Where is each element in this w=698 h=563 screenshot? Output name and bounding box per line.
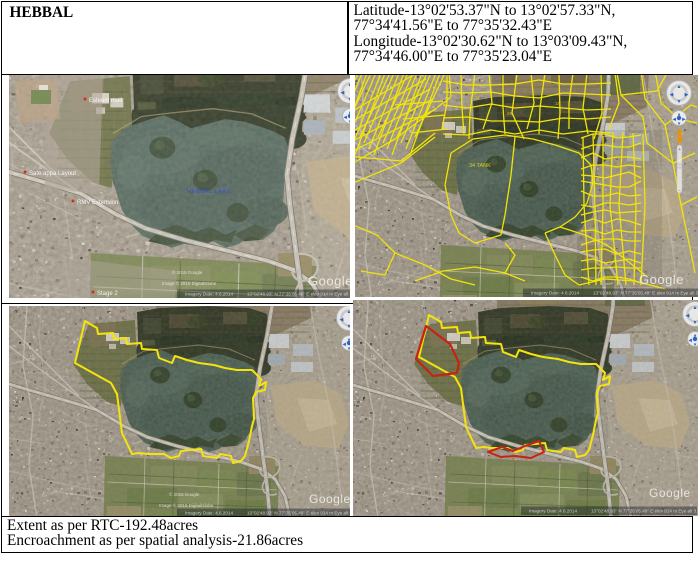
svg-text:15: 15 (555, 101, 561, 106)
svg-text:▲: ▲ (348, 109, 350, 114)
svg-text:Imagery Date: 4.6.2014: Imagery Date: 4.6.2014 (185, 292, 233, 297)
svg-text:24: 24 (617, 161, 623, 166)
svg-text:◀: ◀ (344, 114, 348, 119)
svg-text:▲: ▲ (347, 336, 350, 341)
svg-text:◀: ◀ (685, 313, 689, 319)
svg-text:▲: ▲ (348, 82, 350, 88)
svg-text:34 TANK: 34 TANK (469, 163, 491, 169)
svg-text:▼: ▼ (677, 99, 682, 105)
svg-text:26: 26 (507, 111, 513, 116)
svg-text:31: 31 (660, 101, 666, 106)
svg-text:Google: Google (308, 274, 350, 289)
svg-text:▲: ▲ (677, 111, 681, 116)
svg-text:▼: ▼ (693, 342, 697, 347)
svg-text:13°02'48.93" N 77°35'05.48" E: 13°02'48.93" N 77°35'05.48" E elev 914 m… (593, 291, 698, 296)
svg-text:▼: ▼ (693, 320, 698, 326)
svg-text:Google: Google (639, 272, 684, 287)
svg-text:◀: ◀ (339, 317, 343, 323)
svg-text:◀: ◀ (673, 116, 677, 121)
svg-text:Esteem mall: Esteem mall (89, 98, 122, 104)
svg-text:−: − (678, 188, 681, 194)
svg-text:▼: ▼ (348, 97, 350, 103)
svg-text:Imagery Date: 4.6.2014: Imagery Date: 4.6.2014 (185, 511, 233, 516)
svg-text:▼: ▼ (347, 346, 350, 351)
svg-text:▲: ▲ (677, 84, 682, 90)
svg-text:Image © 2015 DigitalGlobe: Image © 2015 DigitalGlobe (159, 502, 214, 508)
svg-text:13°02'48.93" N 77°35'05.48" E: 13°02'48.93" N 77°35'05.48" E elev 914 m… (247, 511, 350, 516)
svg-text:49: 49 (415, 91, 421, 96)
svg-text:▶: ▶ (685, 92, 689, 98)
svg-text:© 2015 Google: © 2015 Google (169, 491, 200, 497)
svg-text:13°02'48.93" N 77°35'05.48" E: 13°02'48.93" N 77°35'05.48" E elev 914 m… (247, 292, 350, 297)
svg-text:HEBBAL LAKE: HEBBAL LAKE (187, 189, 231, 195)
svg-text:Imagery Date: 4.6.2014: Imagery Date: 4.6.2014 (531, 291, 579, 296)
svg-text:52: 52 (605, 191, 611, 196)
svg-text:Google: Google (309, 492, 350, 506)
svg-text:◀: ◀ (689, 337, 693, 342)
svg-text:▲: ▲ (693, 305, 698, 311)
svg-text:RMV Extension: RMV Extension (77, 200, 118, 206)
svg-text:Sate appa Layout: Sate appa Layout (29, 171, 76, 177)
svg-text:▼: ▼ (348, 119, 350, 124)
svg-text:Google: Google (649, 486, 691, 500)
svg-text:▼: ▼ (677, 121, 681, 126)
svg-text:▲: ▲ (347, 309, 350, 315)
svg-text:33: 33 (475, 95, 481, 100)
svg-text:13°02'48.93" N 77°35'05.48" E: 13°02'48.93" N 77°35'05.48" E elev 914 m… (591, 509, 698, 514)
svg-text:41: 41 (595, 231, 601, 236)
svg-text:Stage 2: Stage 2 (97, 291, 118, 297)
svg-text:◀: ◀ (669, 92, 673, 98)
svg-text:© 2015 Google: © 2015 Google (172, 269, 203, 275)
svg-text:▲: ▲ (693, 332, 697, 337)
svg-text:◀: ◀ (340, 90, 344, 96)
svg-text:Imagery Date: 4.6.2014: Imagery Date: 4.6.2014 (529, 509, 577, 514)
svg-text:+: + (678, 147, 681, 153)
svg-text:▼: ▼ (347, 324, 350, 330)
svg-text:◀: ◀ (343, 341, 347, 346)
svg-text:Image © 2015 DigitalGlobe: Image © 2015 DigitalGlobe (162, 280, 217, 286)
